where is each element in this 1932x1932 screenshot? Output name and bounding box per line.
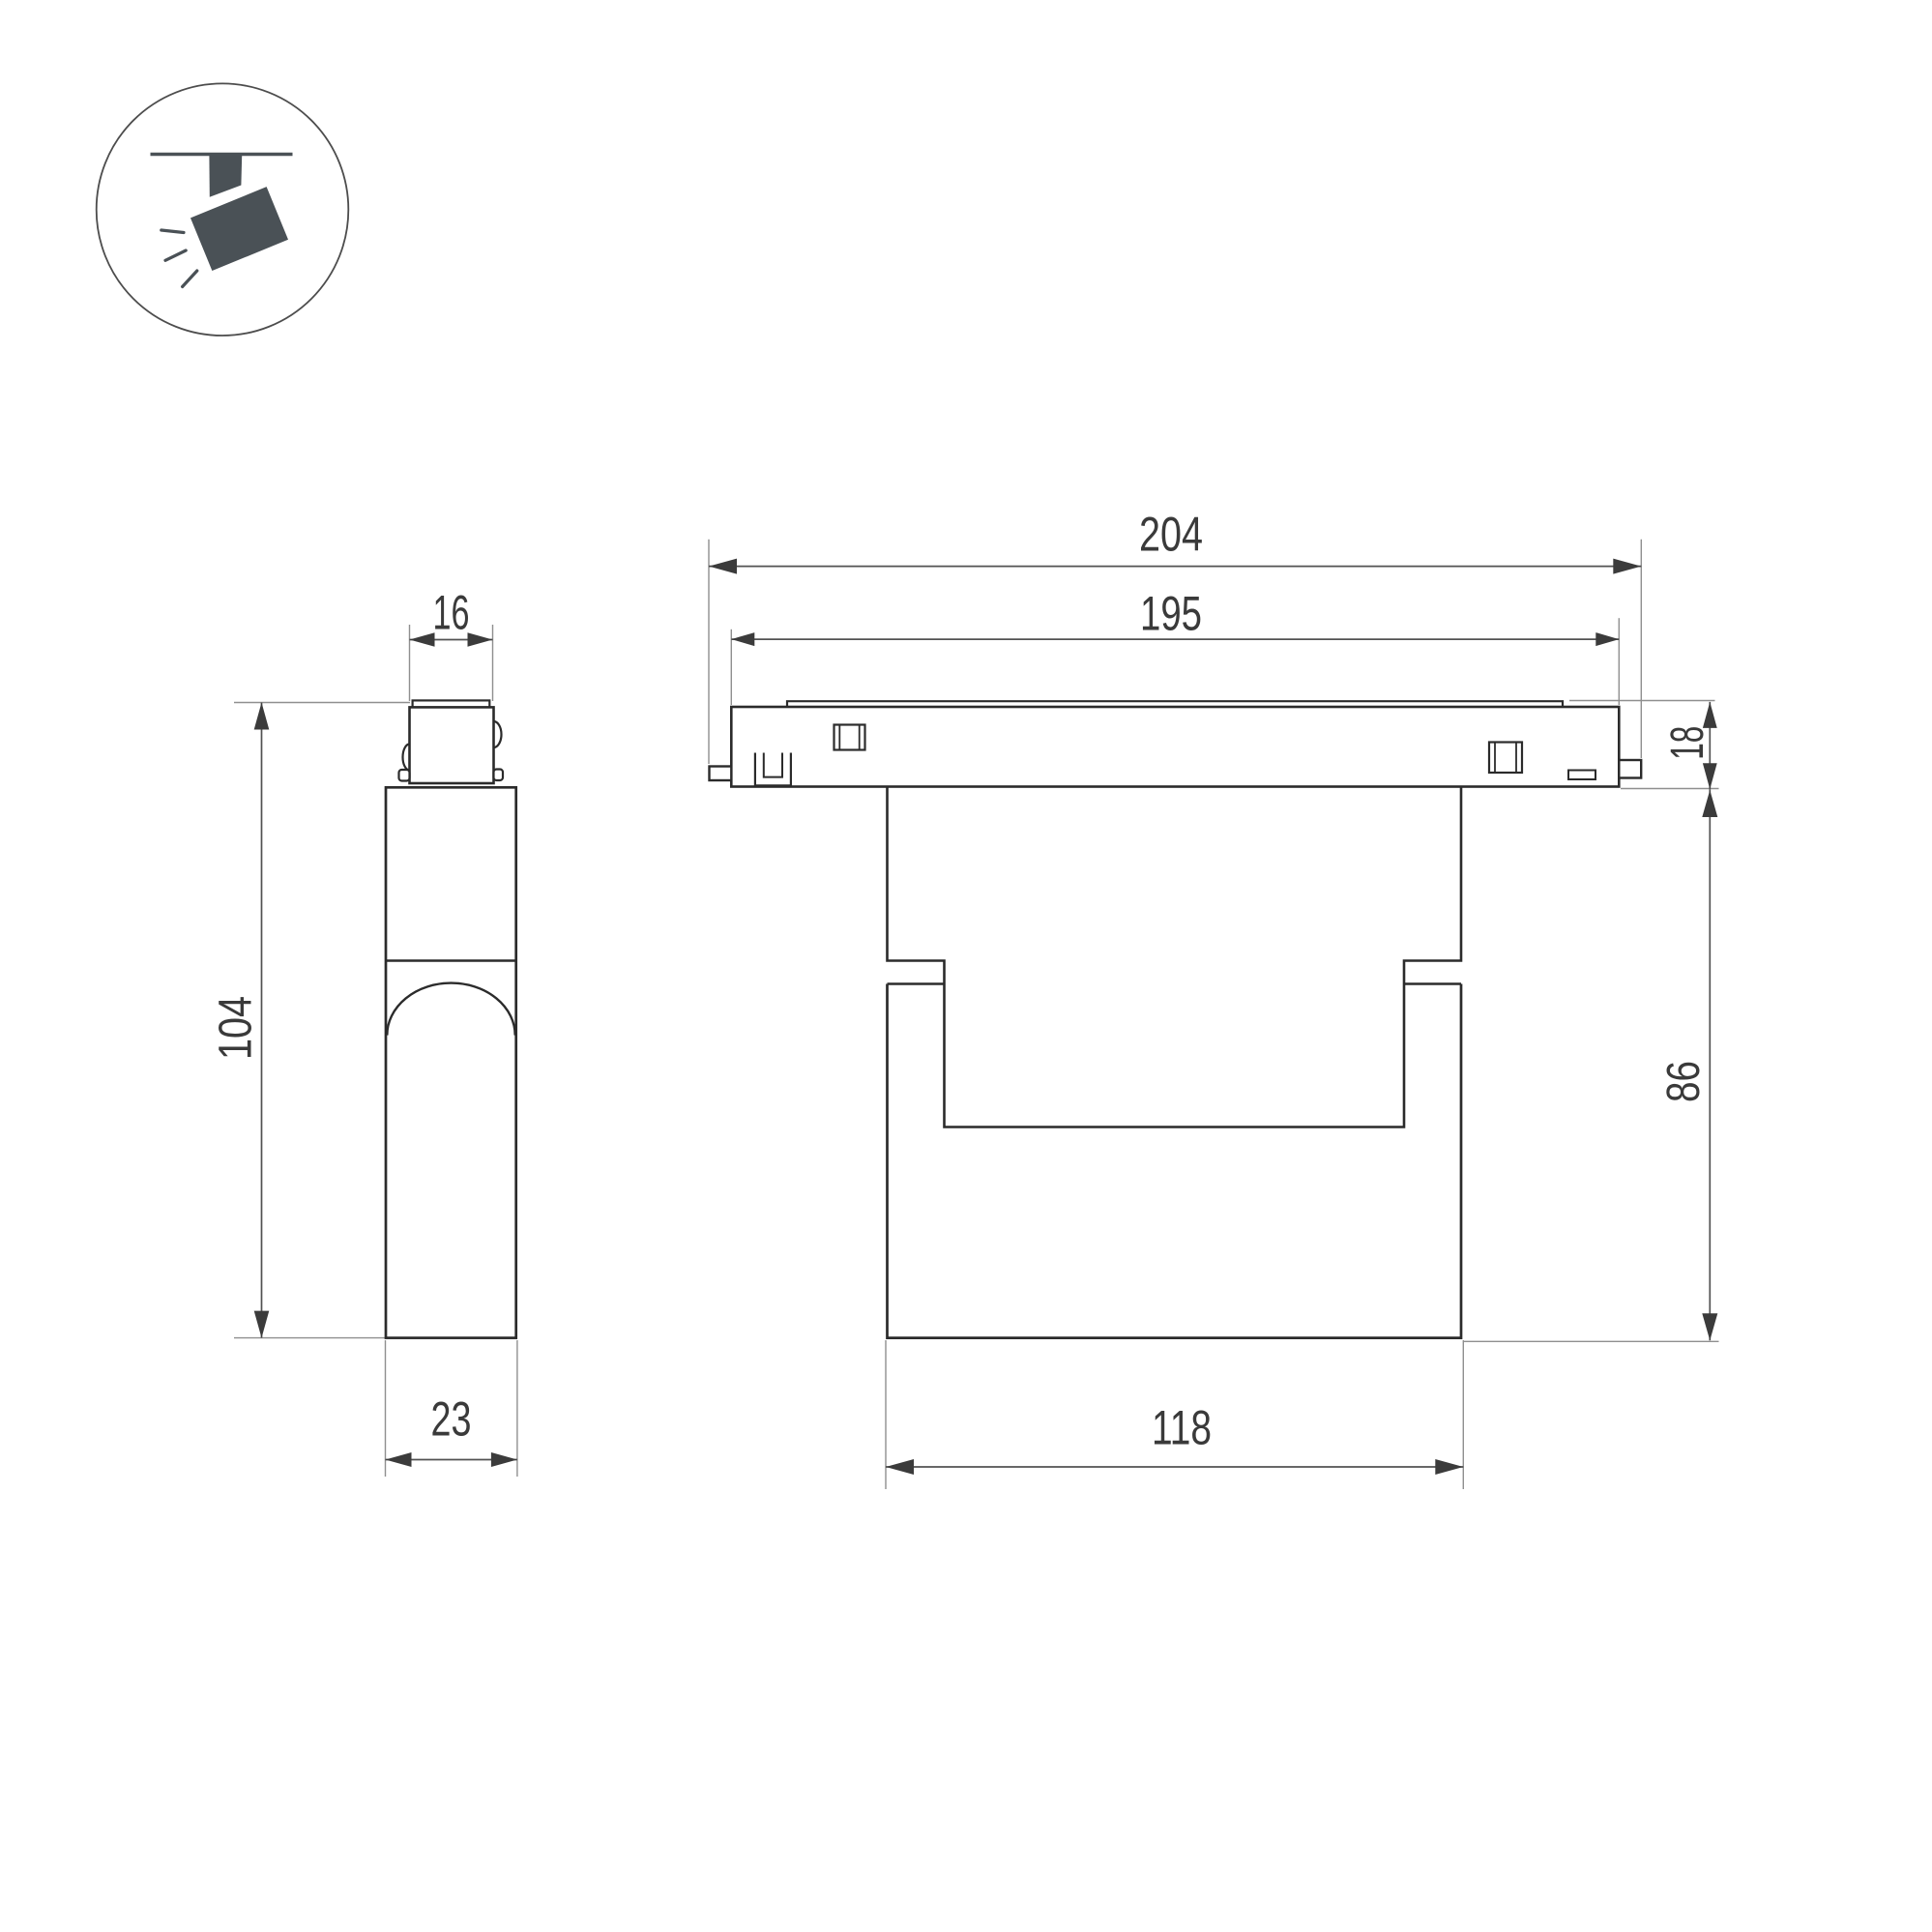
svg-text:86: 86	[1658, 1061, 1710, 1102]
svg-text:118: 118	[1152, 1401, 1212, 1455]
svg-text:104: 104	[210, 996, 261, 1060]
svg-text:195: 195	[1140, 586, 1202, 640]
svg-text:18: 18	[1662, 726, 1713, 760]
svg-text:16: 16	[433, 586, 470, 640]
svg-text:23: 23	[431, 1392, 472, 1447]
svg-text:204: 204	[1139, 508, 1203, 562]
